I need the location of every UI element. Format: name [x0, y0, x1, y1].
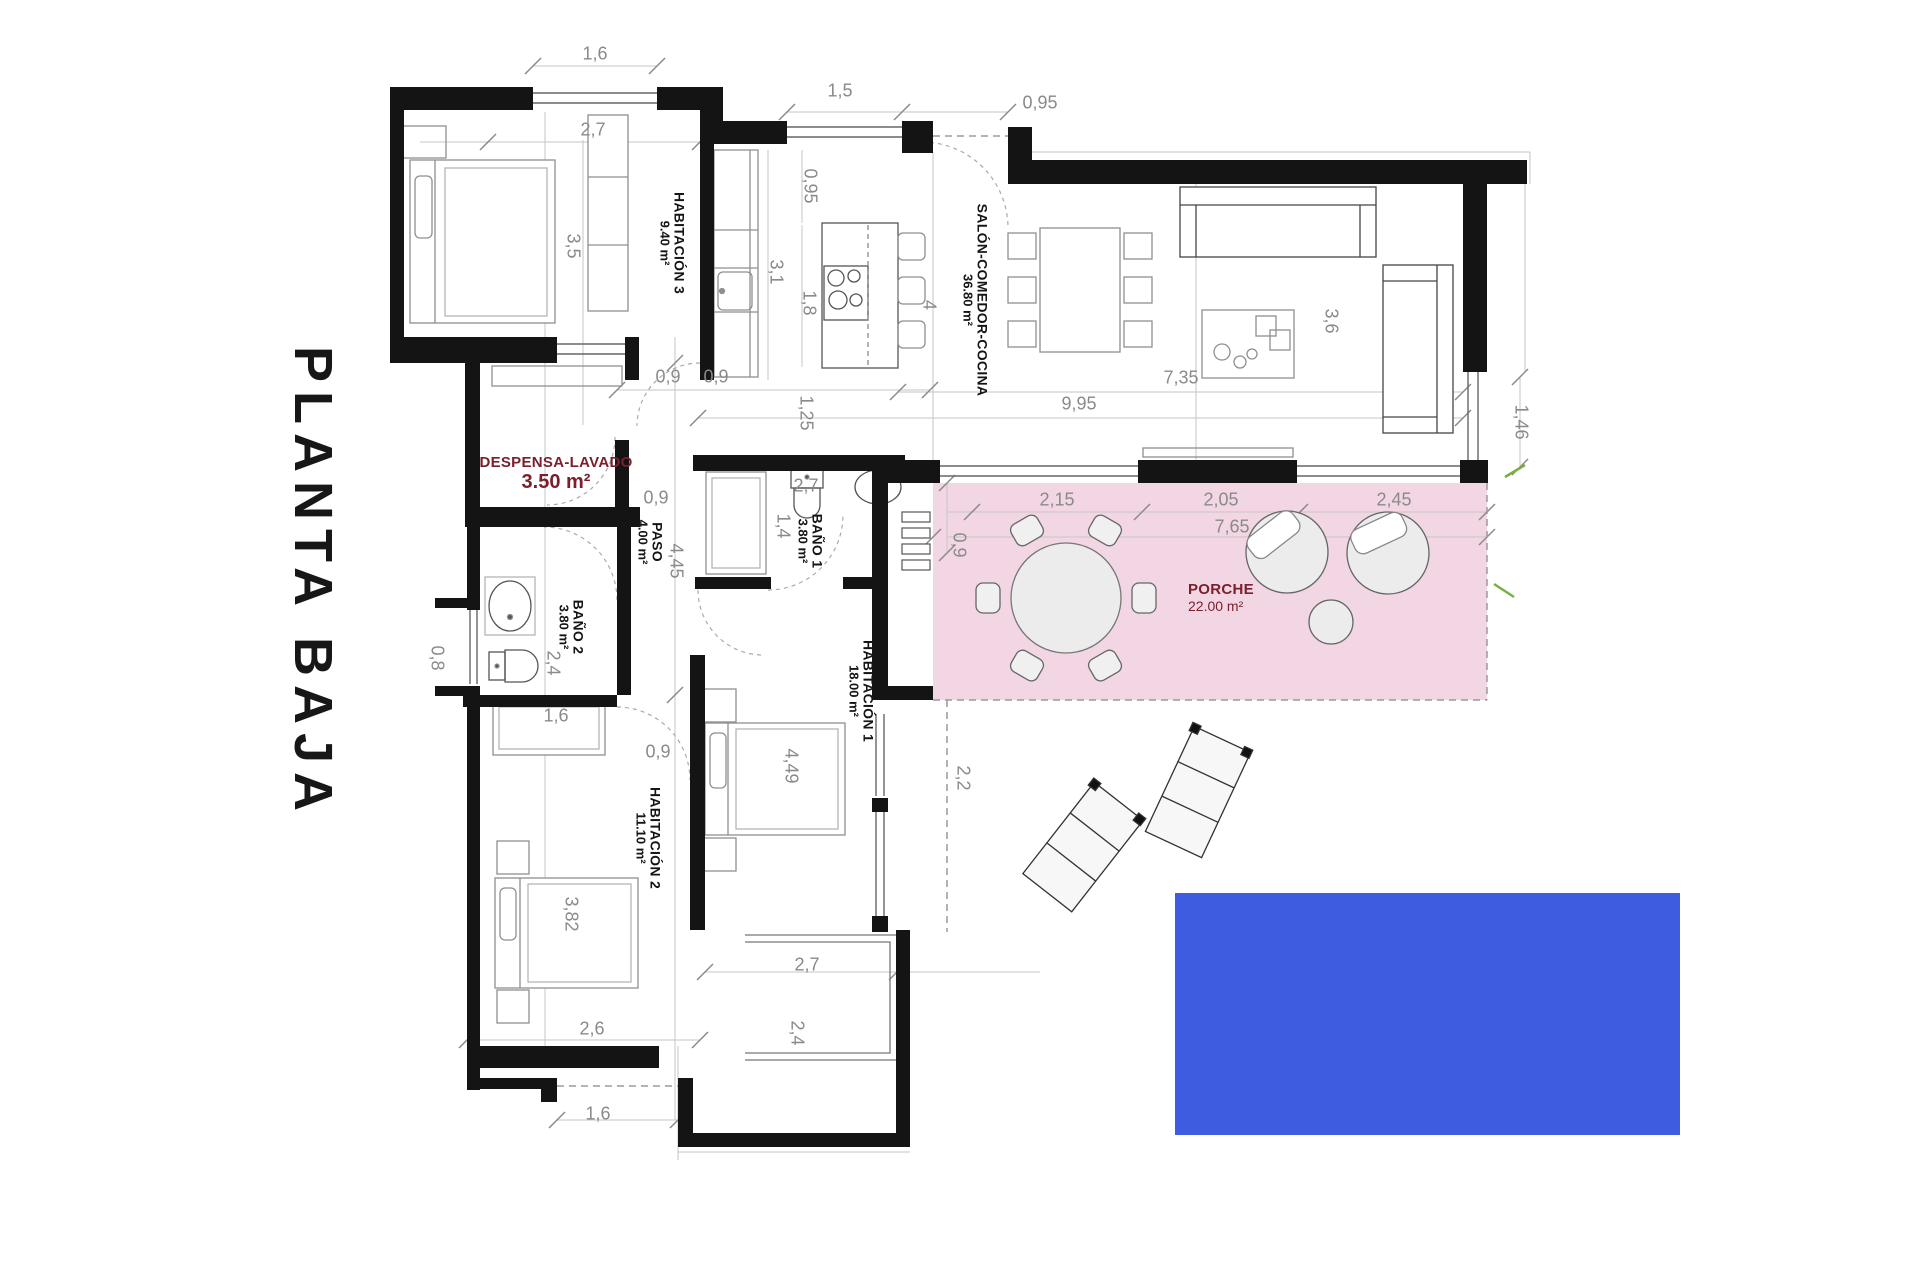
dimension: 1,6	[582, 44, 607, 65]
dimension: 2,7	[580, 120, 605, 141]
tv-bench	[1143, 448, 1293, 457]
dimension: 1,6	[543, 706, 568, 727]
dimension: 7,35	[1163, 368, 1198, 389]
dimension: 2,6	[579, 1019, 604, 1040]
plan-title: PLANTA BAJA	[282, 346, 344, 820]
room-label-despensa: DESPENSA-LAVADO3.50 m²	[479, 454, 632, 494]
dimension: 3,6	[1321, 308, 1342, 333]
room-label-bano2: BAÑO 23.80 m²	[555, 600, 586, 655]
dimension: 2,45	[1376, 490, 1411, 511]
hab1-closet	[745, 935, 897, 1060]
dimension: 2,4	[543, 650, 564, 675]
dimension: 1,5	[827, 81, 852, 102]
toilet-icon	[505, 650, 538, 682]
room-label-salon: SALÓN-COMEDOR-COCINA36.80 m²	[959, 204, 990, 397]
dimension: 0,9	[949, 532, 970, 557]
hab3-wardrobe	[588, 115, 628, 311]
landscape-marks	[1494, 465, 1525, 597]
hab1-bed	[701, 689, 845, 871]
floorplan-canvas: PLANTA BAJA HABITACIÓN 39.40 m² SALÓN-CO…	[0, 0, 1920, 1280]
room-label-bano1: BAÑO 13.80 m²	[794, 514, 825, 569]
dimension: 0,95	[800, 168, 821, 203]
dimension: 0,9	[655, 367, 680, 388]
side-table	[1309, 600, 1353, 644]
kitchen-counter	[714, 150, 758, 377]
furniture	[398, 115, 1453, 1060]
dimension: 0,9	[645, 742, 670, 763]
sofa-large	[1180, 187, 1376, 257]
louver-window-icon	[902, 512, 930, 570]
dimension: 1,46	[1511, 404, 1532, 439]
porch-dining	[976, 513, 1156, 684]
dimension: 2,7	[793, 476, 818, 497]
dimension: 4,49	[781, 748, 802, 783]
room-label-porche: PORCHE22.00 m²	[1188, 581, 1254, 614]
hab3-bed	[398, 126, 555, 323]
dimension: 3,1	[766, 259, 787, 284]
kitchen-island	[822, 223, 898, 368]
coffee-table	[1202, 310, 1294, 378]
dimension: 2,15	[1039, 490, 1074, 511]
island-stool	[898, 321, 925, 348]
island-stool	[898, 233, 925, 260]
laundry-counter	[492, 366, 622, 386]
dimension: 1,4	[773, 513, 794, 538]
dimension: 3,82	[561, 896, 582, 931]
sofa-side	[1383, 265, 1453, 433]
dimension: 9,95	[1061, 394, 1096, 415]
room-label-habitacion2: HABITACIÓN 211.10 m²	[632, 787, 663, 889]
dining-set	[1008, 228, 1152, 352]
hab2-bed	[495, 841, 638, 1023]
dimension: 0,95	[1022, 93, 1057, 114]
dimension: 1,6	[585, 1104, 610, 1125]
dimension: 3,5	[563, 233, 584, 258]
dimension: 4,45	[666, 543, 687, 578]
dimension: 7,65	[1214, 517, 1249, 538]
dimension: 0,8	[427, 645, 448, 670]
dimension: 1,8	[799, 290, 820, 315]
dimension: 0,9	[703, 367, 728, 388]
sun-lounger	[1020, 722, 1252, 912]
dimension: 1,25	[796, 395, 817, 430]
room-label-habitacion3: HABITACIÓN 39.40 m²	[656, 192, 687, 294]
dimension: 4	[919, 300, 940, 310]
dimension: 2,05	[1203, 490, 1238, 511]
bathroom2-fixtures	[485, 577, 538, 682]
dimension: 2,2	[953, 765, 974, 790]
washbasin-icon	[489, 581, 531, 631]
room-label-habitacion1: HABITACIÓN 118.00 m²	[845, 640, 876, 742]
room-label-paso: PASO4.00 m²	[634, 520, 665, 565]
dimension: 0,9	[643, 488, 668, 509]
dimension: 2,4	[787, 1020, 808, 1045]
porch-lounge-chairs	[1243, 507, 1429, 644]
shower-icon	[706, 472, 766, 574]
dimension: 2,7	[794, 955, 819, 976]
